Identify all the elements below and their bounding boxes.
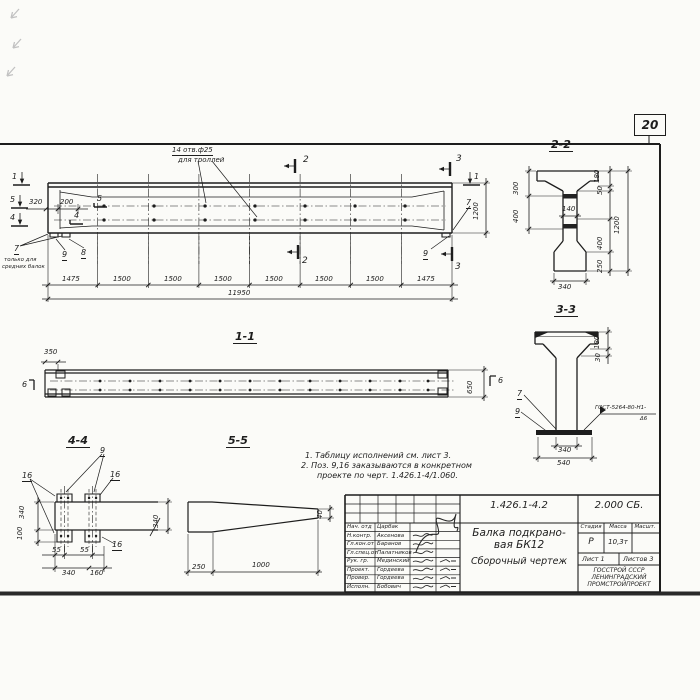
staff-name-3: Палатников <box>377 551 412 557</box>
dim-segment-4: 1500 <box>265 276 283 283</box>
dim-540-s33: 540 <box>557 460 570 467</box>
view-mark-1-right: 1 <box>474 173 479 181</box>
dim-340-bottom-s44: 340 <box>62 570 75 577</box>
drawing-linework <box>0 0 700 700</box>
pos-7-right: 7 <box>466 199 471 209</box>
dim-400-right-s22: 400 <box>597 237 604 250</box>
pos-9-left: 9 <box>62 251 67 261</box>
dim-1200-s22: 1200 <box>614 216 621 234</box>
dim-250-s22: 250 <box>597 260 604 273</box>
staff-role-3: Гл.спец.от <box>347 551 377 557</box>
weld-callout-line1: ГОСТ-5264-80-Н1- <box>595 406 646 412</box>
drawing-sheet: 20 14 отв.ф25 для троллей 1 5 4 1 320 20… <box>0 0 700 700</box>
weld-callout-line2: Δ6 <box>640 417 647 423</box>
doc-number: 1.426.1-4.2 <box>462 501 576 512</box>
beam-title-line3: Сборочный чертеж <box>462 557 576 567</box>
dim-segment-2: 1500 <box>164 276 182 283</box>
staff-role-2: Гл.кон.от <box>347 542 374 548</box>
view-mark-4-left: 4 <box>10 214 15 222</box>
staff-role-5: Проект. <box>347 568 370 574</box>
note-line2: 2. Поз. 9,16 заказываются в конкретном <box>301 462 472 470</box>
dim-100-s44: 100 <box>17 527 24 540</box>
pos-9-right: 9 <box>423 250 428 260</box>
note-line1: 1. Таблицу исполнений см. лист 3. <box>305 452 451 460</box>
dim-200: 200 <box>60 199 73 206</box>
cut-6-right: 6 <box>498 377 503 385</box>
beam-title-line2: вая БК12 <box>462 540 576 551</box>
note-line3: проекте по черт. 1.426.1-4/1.060. <box>317 472 458 480</box>
section-3-3-view <box>521 327 656 462</box>
dim-400-left-s22: 400 <box>513 210 520 223</box>
dim-segment-7: 1475 <box>417 276 435 283</box>
pos-16-a: 16 <box>22 472 32 482</box>
album-number: 2.000 СБ. <box>580 501 658 512</box>
pos-9-s33: 9 <box>515 408 520 418</box>
cut-2-top: 2 <box>303 156 309 165</box>
dim-650: 650 <box>467 381 474 394</box>
section-5-5-title: 5-5 <box>226 435 250 448</box>
dim-340-left-s44: 340 <box>19 506 26 519</box>
trolley-holes <box>104 206 405 220</box>
col-stage: Стадия <box>578 525 604 531</box>
sheet-label: Лист 1 <box>582 556 605 563</box>
staff-role-6: Провер. <box>347 576 370 582</box>
cut-2-bottom: 2 <box>302 257 308 266</box>
dim-30-s33: 30 <box>595 353 602 362</box>
dim-segment-0: 1475 <box>62 276 80 283</box>
signature-marks <box>413 514 458 588</box>
view-mark-5-left: 5 <box>10 196 15 204</box>
staff-name-2: Баранов <box>377 542 401 548</box>
section-1-1-view <box>29 360 496 401</box>
section-4-4-view <box>30 454 172 572</box>
dim-160-s44: 160 <box>90 570 103 577</box>
dim-350: 350 <box>44 349 57 356</box>
cut-6-left: 6 <box>22 381 27 389</box>
dim-1000-s55: 1000 <box>252 562 270 569</box>
pos-8: 8 <box>81 249 86 259</box>
cut-3-bottom: 3 <box>455 263 461 272</box>
dim-55-b: 55 <box>80 547 89 554</box>
beam-title-line1: Балка подкрано- <box>462 528 576 539</box>
holes-note-line2: для троллей <box>178 157 224 164</box>
col-scale: Масшт. <box>632 525 658 531</box>
section-4-4-title: 4-4 <box>66 435 90 448</box>
staff-name-4: Мединский <box>377 559 410 565</box>
cut-flag-4: 4 <box>74 212 79 220</box>
support-plate <box>536 430 592 435</box>
staff-name-0: Царбак <box>377 525 398 531</box>
frame-border <box>0 144 660 592</box>
stage-value: Р <box>578 538 604 547</box>
col-mass: Масса <box>604 525 632 531</box>
staff-name-5: Гордеева <box>377 568 404 574</box>
dim-40-s55: 40 <box>317 510 324 519</box>
org-line3: ПРОМСТРОЙПРОЕКТ <box>578 582 660 588</box>
dim-180-s22: 180 <box>594 170 601 183</box>
dim-320: 320 <box>29 199 42 206</box>
pos-7-left: 7 <box>14 245 19 255</box>
pencil-check-marks <box>7 9 21 76</box>
dim-total-11950: 11950 <box>228 290 250 297</box>
staff-name-1: Аксенова <box>377 534 404 540</box>
dim-segment-5: 1500 <box>315 276 333 283</box>
cut-flag-5: 5 <box>97 195 102 203</box>
dim-50-s22: 50 <box>597 186 604 195</box>
dim-55-a: 55 <box>52 547 61 554</box>
dim-180-s33: 180 <box>594 336 601 349</box>
section-3-3-title: 3-3 <box>554 304 578 317</box>
side-note-line2: средних балок <box>2 265 45 271</box>
staff-name-7: Бобович <box>377 585 401 591</box>
dim-300-s22: 300 <box>513 182 520 195</box>
dim-340-s22: 340 <box>558 284 571 291</box>
staff-role-7: Исполн. <box>347 585 370 591</box>
staff-role-1: Н.контр. <box>347 534 372 540</box>
cut-3-top: 3 <box>456 155 462 164</box>
pos-16-c: 16 <box>112 541 122 551</box>
holes-note-line1: 14 отв.ф25 <box>172 147 213 156</box>
dim-segment-6: 1500 <box>366 276 384 283</box>
mass-value: 10,3т <box>604 539 632 546</box>
dim-segment-3: 1500 <box>214 276 232 283</box>
side-note-line1: только для <box>4 258 36 264</box>
dim-340-s33: 340 <box>558 447 571 454</box>
sheet-number-box: 20 <box>634 114 666 136</box>
staff-role-0: Нач. отд <box>347 525 372 531</box>
staff-name-6: Гордеева <box>377 576 404 582</box>
view-mark-1-left: 1 <box>12 173 17 181</box>
dim-1200-elevation: 1200 <box>473 202 480 220</box>
pos-7-s33: 7 <box>517 390 522 400</box>
section-1-1-title: 1-1 <box>233 331 257 344</box>
sheets-label: Листов 3 <box>623 556 653 563</box>
dim-340-right-s44: 340 <box>153 515 160 528</box>
dim-250-s55: 250 <box>192 564 205 571</box>
pos-9-s44: 9 <box>100 447 105 457</box>
section-2-2-title: 2-2 <box>549 139 573 152</box>
staff-role-4: Рук. гр. <box>347 559 369 565</box>
dim-segment-1: 1500 <box>113 276 131 283</box>
pos-16-b: 16 <box>110 471 120 481</box>
dim-140-s22: 140 <box>562 206 575 213</box>
